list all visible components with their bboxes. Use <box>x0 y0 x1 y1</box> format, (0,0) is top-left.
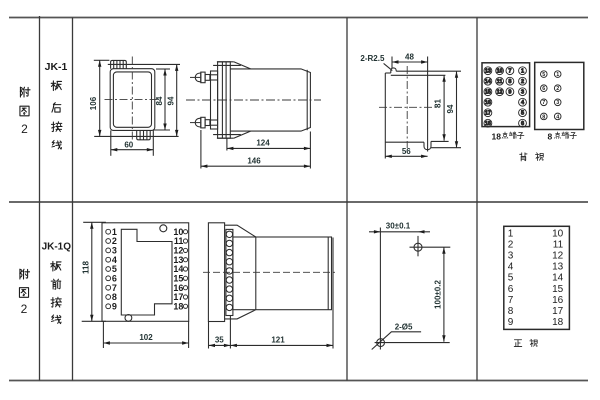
svg-text:8: 8 <box>548 131 553 141</box>
svg-text:6: 6 <box>521 121 524 127</box>
svg-text:6: 6 <box>542 86 545 92</box>
svg-text:7: 7 <box>542 100 545 106</box>
svg-text:8: 8 <box>508 306 514 317</box>
svg-text:3: 3 <box>556 100 559 106</box>
svg-text:3: 3 <box>508 251 514 262</box>
svg-text:5: 5 <box>542 72 545 78</box>
svg-text:10: 10 <box>497 69 503 75</box>
svg-text:4: 4 <box>508 262 514 273</box>
svg-text:100±0.2: 100±0.2 <box>433 280 442 309</box>
svg-text:14: 14 <box>485 79 491 85</box>
svg-text:30±0.1: 30±0.1 <box>386 221 411 230</box>
svg-text:84: 84 <box>155 96 164 105</box>
svg-text:48: 48 <box>405 53 414 62</box>
svg-text:9: 9 <box>508 90 511 96</box>
svg-text:121: 121 <box>271 335 285 344</box>
svg-text:17: 17 <box>552 306 564 317</box>
svg-text:13: 13 <box>485 69 491 75</box>
svg-text:2: 2 <box>21 122 28 136</box>
svg-text:94: 94 <box>446 104 455 113</box>
svg-text:16: 16 <box>552 295 564 306</box>
svg-text:2: 2 <box>21 302 28 316</box>
svg-text:15: 15 <box>485 90 491 96</box>
svg-text:16: 16 <box>485 100 491 106</box>
svg-text:11: 11 <box>553 240 564 251</box>
svg-text:5: 5 <box>521 111 524 117</box>
svg-text:14: 14 <box>552 273 564 284</box>
svg-text:5: 5 <box>508 273 514 284</box>
svg-text:9: 9 <box>112 301 117 311</box>
svg-text:12: 12 <box>552 251 564 262</box>
svg-text:81: 81 <box>434 99 443 108</box>
svg-text:60: 60 <box>124 141 133 150</box>
svg-text:1: 1 <box>508 229 514 240</box>
svg-text:1: 1 <box>521 69 524 75</box>
svg-text:18: 18 <box>552 317 564 328</box>
svg-text:8: 8 <box>542 114 545 120</box>
svg-text:7: 7 <box>508 69 511 75</box>
svg-text:18: 18 <box>492 131 502 141</box>
svg-text:56: 56 <box>402 147 411 156</box>
svg-text:4: 4 <box>556 114 559 120</box>
svg-text:2: 2 <box>521 79 524 85</box>
svg-text:17: 17 <box>485 111 491 117</box>
svg-text:18: 18 <box>485 121 491 127</box>
svg-text:146: 146 <box>247 157 261 166</box>
svg-text:3: 3 <box>521 90 524 96</box>
svg-text:11: 11 <box>497 79 503 85</box>
svg-text:10: 10 <box>552 229 564 240</box>
svg-text:35: 35 <box>215 336 224 345</box>
svg-text:JK-1Q: JK-1Q <box>42 242 72 253</box>
svg-text:1: 1 <box>556 72 559 78</box>
svg-text:2: 2 <box>508 240 514 251</box>
svg-text:18: 18 <box>173 301 183 311</box>
svg-text:118: 118 <box>81 260 90 273</box>
svg-text:6: 6 <box>508 284 514 295</box>
svg-text:106: 106 <box>89 96 98 110</box>
svg-text:102: 102 <box>139 333 153 342</box>
svg-text:15: 15 <box>552 284 564 295</box>
svg-text:2-Ø5: 2-Ø5 <box>395 323 413 332</box>
svg-text:2-R2.5: 2-R2.5 <box>360 54 385 63</box>
svg-text:124: 124 <box>256 138 270 147</box>
svg-text:94: 94 <box>166 96 175 105</box>
svg-text:JK-1: JK-1 <box>45 61 68 73</box>
svg-text:2: 2 <box>556 86 559 92</box>
svg-text:12: 12 <box>497 90 503 96</box>
svg-text:13: 13 <box>552 262 564 273</box>
svg-text:8: 8 <box>508 79 511 85</box>
svg-text:7: 7 <box>508 295 514 306</box>
svg-text:9: 9 <box>508 317 514 328</box>
